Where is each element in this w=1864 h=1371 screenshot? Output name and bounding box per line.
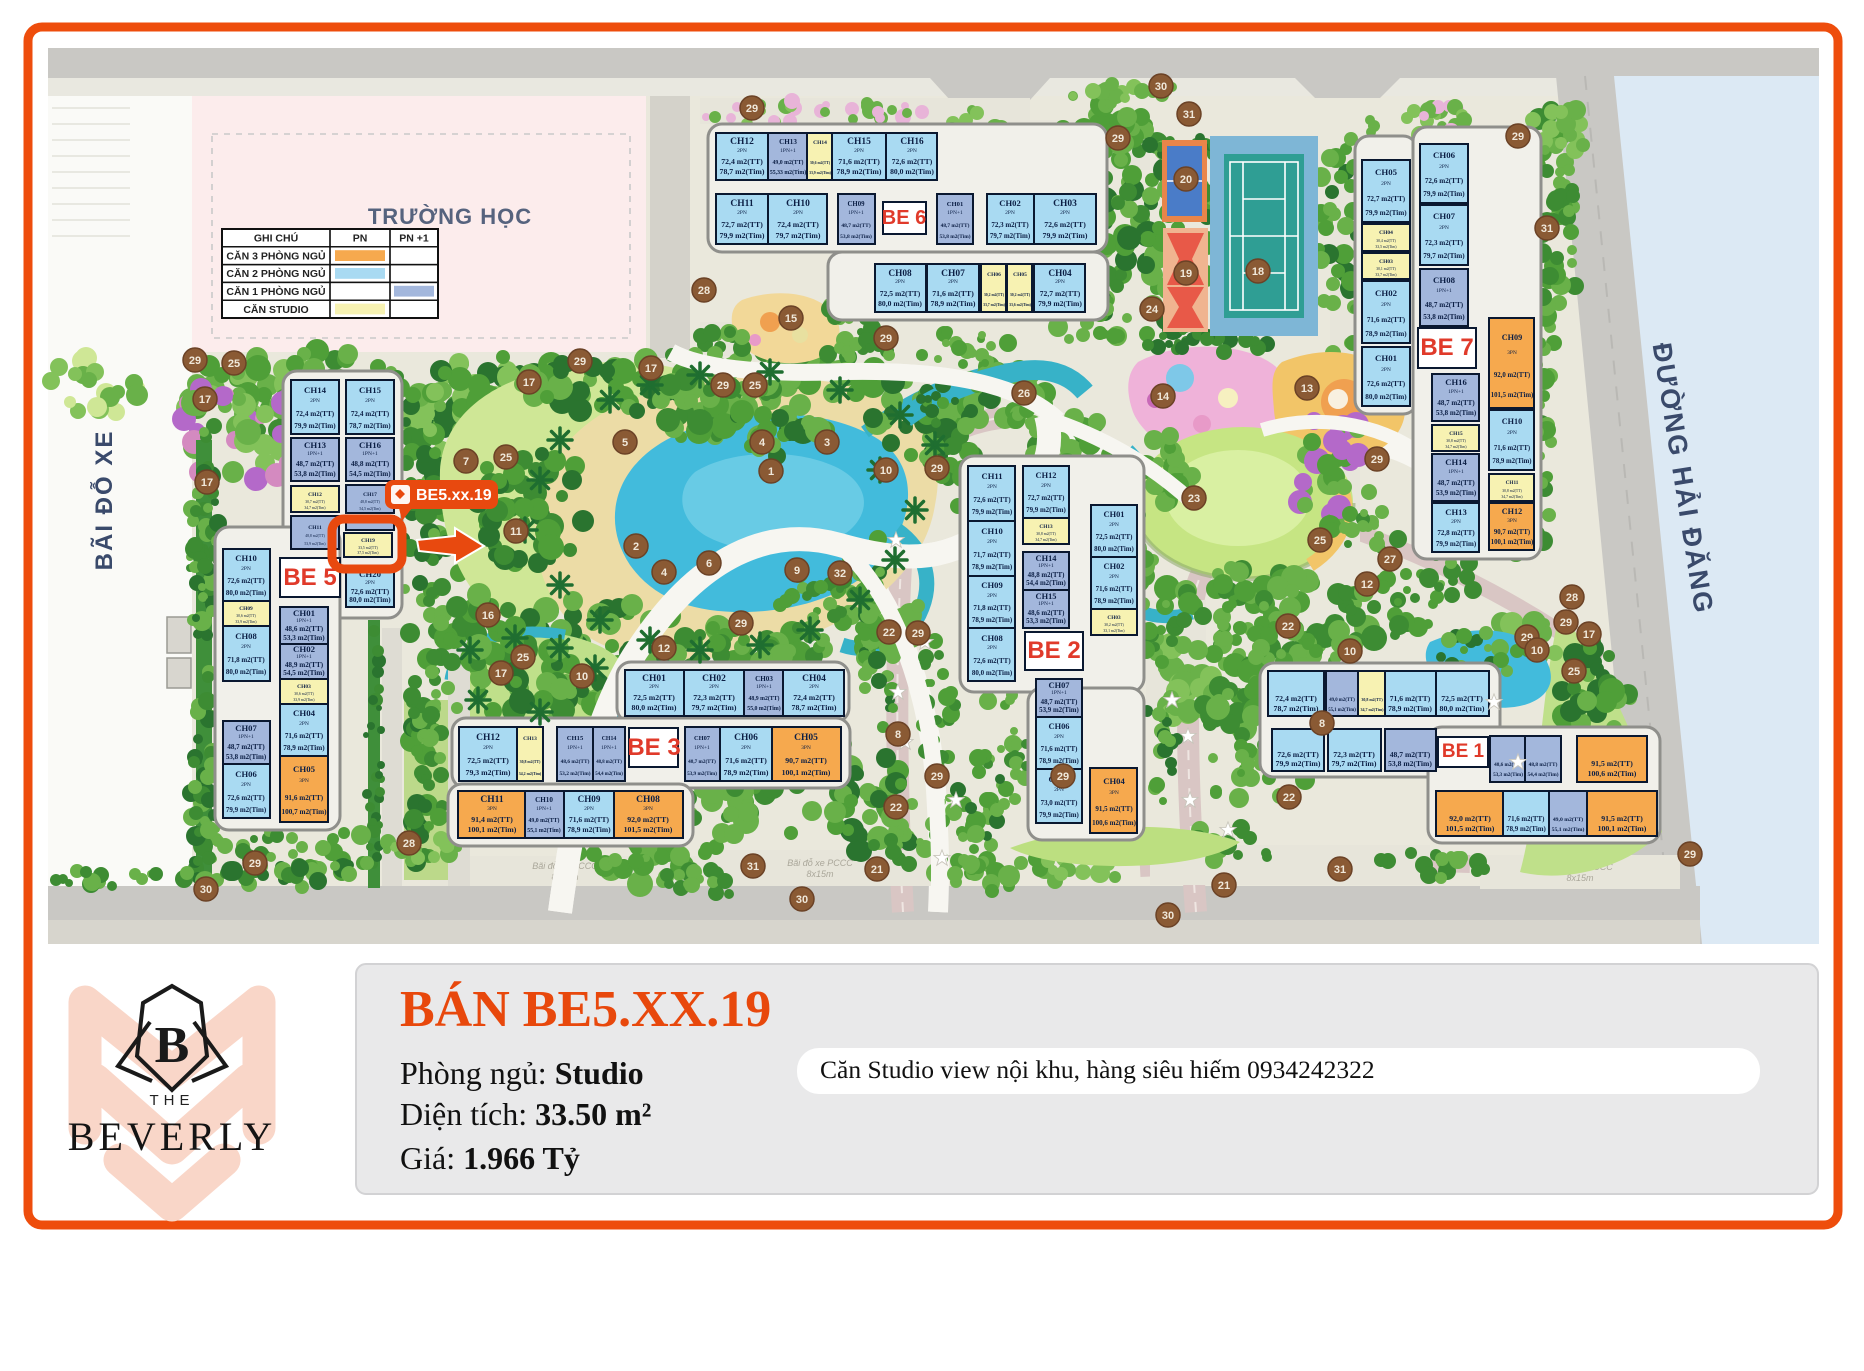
svg-text:2PN: 2PN [737, 210, 747, 216]
svg-text:79,9 m2(Tim): 79,9 m2(Tim) [720, 231, 765, 240]
svg-text:30,8 m2(TT): 30,8 m2(TT) [520, 760, 541, 764]
svg-text:80,0 m2(Tim): 80,0 m2(Tim) [878, 299, 922, 308]
svg-text:2PN: 2PN [907, 148, 917, 154]
svg-text:28: 28 [1566, 592, 1578, 604]
svg-text:48,7 m2(TT): 48,7 m2(TT) [1437, 479, 1475, 487]
svg-text:2PN: 2PN [987, 593, 997, 599]
svg-text:80,0 m2(Tim): 80,0 m2(Tim) [1094, 546, 1134, 553]
svg-text:72,7 m2(TT): 72,7 m2(TT) [1040, 289, 1081, 298]
svg-text:Căn Studio view nội khu, hàng: Căn Studio view nội khu, hàng siêu hiếm … [820, 1055, 1375, 1084]
svg-text:CH14: CH14 [1036, 554, 1058, 563]
svg-text:34,2 m2(Tim): 34,2 m2(Tim) [519, 772, 542, 776]
svg-text:22: 22 [890, 802, 902, 814]
svg-text:72,5 m2(TT): 72,5 m2(TT) [467, 756, 509, 765]
svg-text:CH07: CH07 [1433, 211, 1456, 221]
svg-text:B: B [155, 1017, 190, 1074]
svg-text:CH07: CH07 [694, 735, 711, 742]
svg-text:2PN: 2PN [809, 684, 819, 690]
svg-text:CH14: CH14 [602, 736, 617, 742]
svg-text:1PN+1: 1PN+1 [947, 210, 963, 216]
svg-text:29: 29 [1512, 131, 1524, 143]
svg-text:72,3 m2(TT): 72,3 m2(TT) [1425, 239, 1464, 247]
svg-text:2PN: 2PN [1439, 164, 1449, 170]
svg-text:12: 12 [658, 643, 670, 655]
svg-text:30,2 m2(TT): 30,2 m2(TT) [1010, 293, 1031, 297]
svg-text:29: 29 [1684, 849, 1696, 861]
svg-text:29: 29 [735, 618, 747, 630]
svg-text:78,9 m2(Tim): 78,9 m2(Tim) [567, 825, 611, 834]
svg-text:79,9 m2(Tim): 79,9 m2(Tim) [1039, 812, 1079, 819]
svg-text:80,0 m2(Tim): 80,0 m2(Tim) [349, 596, 391, 604]
svg-text:34,7 m2(Tim): 34,7 m2(Tim) [1360, 707, 1384, 712]
svg-text:2PN: 2PN [584, 806, 594, 812]
svg-text:32: 32 [834, 568, 846, 580]
svg-text:79,9 m2(Tim): 79,9 m2(Tim) [1276, 759, 1321, 768]
svg-text:1PN+1: 1PN+1 [756, 684, 772, 690]
svg-text:BE 1: BE 1 [1442, 741, 1485, 762]
svg-text:CH01: CH01 [642, 674, 666, 684]
svg-text:CĂN 2 PHÒNG NGỦ: CĂN 2 PHÒNG NGỦ [226, 267, 325, 280]
svg-text:17: 17 [645, 363, 657, 375]
svg-text:CH12: CH12 [1036, 471, 1057, 480]
svg-text:72,5 m2(TT): 72,5 m2(TT) [633, 693, 675, 702]
svg-text:48,9 m2(TT): 48,9 m2(TT) [285, 661, 324, 669]
svg-text:71,6 m2(TT): 71,6 m2(TT) [1494, 445, 1530, 452]
svg-text:53,8 m2(Tim): 53,8 m2(Tim) [939, 233, 970, 240]
svg-text:72,6 m2(TT): 72,6 m2(TT) [1044, 220, 1086, 229]
svg-text:48,7 m2(TT): 48,7 m2(TT) [841, 222, 871, 229]
svg-text:TRƯỜNG HỌC: TRƯỜNG HỌC [368, 204, 532, 229]
svg-text:CH15: CH15 [359, 385, 382, 395]
svg-text:5: 5 [622, 437, 628, 449]
svg-text:11: 11 [510, 526, 522, 538]
svg-text:72,6 m2(TT): 72,6 m2(TT) [973, 496, 1011, 504]
svg-text:CH06: CH06 [734, 733, 758, 743]
svg-text:78,9 m2(Tim): 78,9 m2(Tim) [837, 167, 882, 176]
svg-text:78,7 m2(Tim): 78,7 m2(Tim) [720, 167, 765, 176]
svg-text:72,6 m2(TT): 72,6 m2(TT) [1367, 380, 1406, 388]
svg-text:PN +1: PN +1 [399, 233, 429, 245]
svg-text:55,1 m2(Tim): 55,1 m2(Tim) [1552, 826, 1585, 833]
svg-text:48,9 m2(TT): 48,9 m2(TT) [749, 695, 780, 702]
svg-text:55,33 m2(Tim): 55,33 m2(Tim) [770, 169, 806, 176]
svg-text:33,7 m2(Tim): 33,7 m2(Tim) [983, 303, 1006, 307]
svg-text:CH05: CH05 [794, 733, 818, 743]
svg-text:30,6 m2(TT): 30,6 m2(TT) [810, 161, 831, 165]
svg-text:1PN+1: 1PN+1 [1051, 690, 1067, 696]
svg-text:2PN: 2PN [895, 279, 905, 285]
svg-text:1PN+1: 1PN+1 [307, 451, 323, 457]
svg-text:CH06: CH06 [1433, 150, 1456, 160]
svg-text:78,9 m2(Tim): 78,9 m2(Tim) [1094, 598, 1134, 605]
svg-text:1PN+1: 1PN+1 [1436, 288, 1452, 294]
svg-text:1PN+1: 1PN+1 [780, 148, 796, 154]
svg-text:CH11: CH11 [981, 471, 1002, 481]
svg-text:BE 2: BE 2 [1027, 637, 1080, 664]
svg-text:CH09: CH09 [239, 606, 253, 612]
svg-text:Giá: 1.966 Tỷ: Giá: 1.966 Tỷ [400, 1140, 580, 1176]
svg-text:CH03: CH03 [297, 684, 311, 690]
svg-text:79,9 m2(Tim): 79,9 m2(Tim) [1038, 299, 1082, 308]
svg-text:3PN: 3PN [643, 806, 653, 812]
svg-text:48,7 m2(TT): 48,7 m2(TT) [1425, 301, 1464, 309]
svg-text:CH14: CH14 [1445, 457, 1467, 467]
svg-text:91,5 m2(TT): 91,5 m2(TT) [1601, 814, 1643, 823]
svg-text:21: 21 [871, 864, 883, 876]
svg-text:CH14: CH14 [813, 140, 827, 146]
svg-text:27: 27 [1384, 554, 1396, 566]
svg-text:30,2 m2(TT): 30,2 m2(TT) [984, 293, 1005, 297]
svg-text:1: 1 [768, 466, 774, 478]
svg-text:CH13: CH13 [1039, 524, 1053, 530]
svg-text:15: 15 [785, 313, 797, 325]
svg-text:72,6 m2(TT): 72,6 m2(TT) [227, 794, 265, 802]
svg-text:78,9 m2(Tim): 78,9 m2(Tim) [724, 768, 769, 777]
svg-text:72,5 m2(TT): 72,5 m2(TT) [1441, 694, 1483, 703]
svg-text:72,3 m2(TT): 72,3 m2(TT) [1333, 750, 1375, 759]
svg-text:CH13: CH13 [779, 138, 797, 146]
svg-text:54,5 m2(Tim): 54,5 m2(Tim) [283, 669, 325, 677]
svg-text:48,7 m2(TT): 48,7 m2(TT) [1437, 399, 1475, 407]
svg-text:CH13: CH13 [523, 736, 537, 742]
svg-text:53,8 m2(Tim): 53,8 m2(Tim) [226, 753, 267, 761]
svg-text:1PN+1: 1PN+1 [1448, 469, 1464, 475]
svg-text:71,6 m2(TT): 71,6 m2(TT) [285, 732, 324, 740]
svg-text:CH02: CH02 [999, 198, 1020, 208]
svg-text:CH01: CH01 [293, 608, 315, 618]
svg-text:2PN: 2PN [987, 645, 997, 651]
svg-text:80,0 m2(Tim): 80,0 m2(Tim) [1365, 393, 1407, 401]
svg-text:CH09: CH09 [578, 794, 601, 804]
svg-text:49,0 m2(TT): 49,0 m2(TT) [773, 159, 804, 166]
svg-text:10: 10 [880, 465, 892, 477]
svg-text:72,4 m2(TT): 72,4 m2(TT) [793, 693, 835, 702]
svg-text:CH16: CH16 [1445, 377, 1467, 387]
svg-text:CH17: CH17 [363, 492, 377, 498]
svg-text:100,1 m2(Tim): 100,1 m2(Tim) [468, 825, 517, 834]
svg-text:2PN: 2PN [1060, 210, 1070, 216]
svg-text:CH03: CH03 [1053, 199, 1077, 209]
svg-text:BE 6: BE 6 [882, 207, 926, 229]
svg-text:48,7 m2(TT): 48,7 m2(TT) [1041, 699, 1078, 706]
svg-text:33,6 m2(Tim): 33,6 m2(Tim) [1009, 303, 1032, 307]
svg-text:3PN: 3PN [1507, 518, 1517, 524]
svg-text:79,7 m2(Tim): 79,7 m2(Tim) [990, 232, 1031, 240]
svg-text:CH15: CH15 [847, 137, 871, 147]
svg-text:BE 7: BE 7 [1420, 334, 1473, 361]
svg-text:100,1 m2(Tim): 100,1 m2(Tim) [782, 768, 831, 777]
svg-text:72,8 m2(TT): 72,8 m2(TT) [1437, 529, 1475, 537]
svg-text:1PN+1: 1PN+1 [848, 210, 864, 216]
svg-text:100,1 m2(Tim): 100,1 m2(Tim) [1598, 824, 1647, 833]
svg-text:CH09: CH09 [1502, 333, 1522, 342]
svg-text:8: 8 [895, 729, 901, 741]
svg-text:CH10: CH10 [535, 796, 553, 804]
svg-text:29: 29 [931, 771, 943, 783]
svg-text:1PN+1: 1PN+1 [694, 745, 710, 751]
svg-text:Phòng ngủ: Studio: Phòng ngủ: Studio [400, 1055, 644, 1091]
svg-text:71,8 m2(TT): 71,8 m2(TT) [973, 604, 1011, 612]
svg-text:CH04: CH04 [1379, 230, 1393, 236]
svg-text:Diện tích: 33.50 m²: Diện tích: 33.50 m² [400, 1096, 651, 1132]
svg-text:80,0 m2(Tim): 80,0 m2(Tim) [972, 669, 1013, 677]
svg-text:2PN: 2PN [793, 210, 803, 216]
svg-text:71,6 m2(TT): 71,6 m2(TT) [1096, 586, 1133, 593]
svg-text:49,0 m2(TT): 49,0 m2(TT) [1329, 698, 1355, 703]
svg-text:16: 16 [482, 610, 494, 622]
svg-text:30,8 m2(TT): 30,8 m2(TT) [1361, 697, 1383, 702]
svg-text:53,8 m2(Tim): 53,8 m2(Tim) [1436, 409, 1477, 417]
svg-text:49,0 m2(TT): 49,0 m2(TT) [1553, 816, 1583, 823]
svg-text:79,7 m2(Tim): 79,7 m2(Tim) [1332, 759, 1377, 768]
svg-text:53,2 m2(Tim): 53,2 m2(Tim) [559, 770, 590, 777]
svg-text:48,8 m2(TT): 48,8 m2(TT) [351, 460, 390, 468]
svg-text:2PN: 2PN [737, 148, 747, 154]
svg-text:80,0 m2(Tim): 80,0 m2(Tim) [226, 668, 267, 676]
svg-text:90,7 m2(TT): 90,7 m2(TT) [785, 756, 827, 765]
svg-text:91,5 m2(TT): 91,5 m2(TT) [1591, 759, 1633, 768]
svg-text:CH05: CH05 [1375, 167, 1398, 177]
svg-text:3PN: 3PN [1109, 790, 1119, 796]
svg-text:72,6 m2(TT): 72,6 m2(TT) [973, 657, 1011, 665]
svg-text:CH02: CH02 [293, 644, 316, 654]
svg-text:30: 30 [796, 894, 808, 906]
svg-text:22: 22 [1283, 792, 1295, 804]
svg-text:29: 29 [746, 103, 758, 115]
svg-text:1PN+1: 1PN+1 [567, 745, 583, 751]
svg-text:CH11: CH11 [730, 199, 753, 209]
svg-text:1PN+1: 1PN+1 [362, 451, 378, 457]
svg-text:3PN: 3PN [487, 806, 497, 812]
svg-text:2PN: 2PN [1005, 210, 1015, 216]
svg-text:48,7 m2(TT): 48,7 m2(TT) [227, 743, 265, 751]
svg-text:72,5 m2(TT): 72,5 m2(TT) [880, 289, 921, 298]
svg-text:79,9 m2(Tim): 79,9 m2(Tim) [294, 422, 336, 430]
svg-text:48,6 m2(TT): 48,6 m2(TT) [561, 758, 590, 765]
svg-text:26: 26 [1018, 388, 1030, 400]
svg-text:6: 6 [706, 558, 712, 570]
svg-text:100,6 m2(Tim): 100,6 m2(Tim) [1588, 769, 1637, 778]
svg-text:78,9 m2(Tim): 78,9 m2(Tim) [1365, 330, 1407, 338]
svg-text:72,5 m2(TT): 72,5 m2(TT) [1096, 534, 1133, 541]
svg-text:CH11: CH11 [1506, 480, 1519, 486]
svg-text:53,9 m2(Tim): 53,9 m2(Tim) [687, 770, 717, 777]
svg-text:71,6 m2(TT): 71,6 m2(TT) [1041, 746, 1078, 753]
svg-text:29: 29 [1371, 454, 1383, 466]
svg-text:31: 31 [1541, 223, 1553, 235]
svg-text:22: 22 [1282, 621, 1294, 633]
svg-text:CH10: CH10 [1502, 417, 1522, 426]
svg-text:54,4 m2(Tim): 54,4 m2(Tim) [1026, 580, 1066, 587]
svg-text:4: 4 [759, 437, 766, 449]
svg-text:2PN: 2PN [709, 684, 719, 690]
svg-text:17: 17 [199, 394, 211, 406]
svg-text:72,4 m2(TT): 72,4 m2(TT) [777, 220, 819, 229]
svg-text:72,4 m2(TT): 72,4 m2(TT) [721, 157, 763, 166]
svg-text:BÁN BE5.XX.19: BÁN BE5.XX.19 [400, 980, 771, 1038]
svg-text:48,8 m2(TT): 48,8 m2(TT) [1028, 572, 1065, 579]
svg-text:71,6 m2(TT): 71,6 m2(TT) [838, 157, 880, 166]
svg-text:10: 10 [576, 671, 588, 683]
svg-text:78,7 m2(Tim): 78,7 m2(Tim) [349, 422, 391, 430]
svg-text:55,0 m2(Tim): 55,0 m2(Tim) [747, 705, 780, 712]
svg-text:2PN: 2PN [299, 721, 309, 727]
svg-text:CH08: CH08 [235, 631, 257, 641]
svg-text:79,9 m2(Tim): 79,9 m2(Tim) [1436, 540, 1477, 548]
svg-text:71,6 m2(TT): 71,6 m2(TT) [569, 815, 610, 824]
svg-text:CH09: CH09 [981, 580, 1002, 590]
svg-text:72,6 m2(TT): 72,6 m2(TT) [1277, 750, 1319, 759]
svg-text:CH03: CH03 [1107, 615, 1121, 621]
svg-text:THE: THE [150, 1092, 195, 1109]
svg-text:1PN+1: 1PN+1 [1038, 563, 1054, 569]
svg-text:72,6 m2(TT): 72,6 m2(TT) [1425, 177, 1464, 185]
svg-text:23: 23 [1188, 493, 1200, 505]
svg-text:72,7 m2(TT): 72,7 m2(TT) [721, 220, 763, 229]
svg-text:78,7 m2(Tim): 78,7 m2(Tim) [792, 703, 837, 712]
svg-text:1PN+1: 1PN+1 [296, 618, 312, 624]
svg-text:72,6 m2(TT): 72,6 m2(TT) [351, 588, 390, 596]
svg-text:72,4 m2(TT): 72,4 m2(TT) [1275, 694, 1317, 703]
svg-text:CH02: CH02 [702, 674, 726, 684]
svg-text:90,7 m2(TT): 90,7 m2(TT) [1494, 529, 1530, 536]
svg-text:54,4 m2(Tim): 54,4 m2(Tim) [595, 772, 623, 777]
svg-text:4: 4 [661, 567, 668, 579]
svg-text:2PN: 2PN [1381, 367, 1391, 373]
svg-text:53,8 m2(Tim): 53,8 m2(Tim) [840, 233, 872, 240]
svg-text:2PN: 2PN [1109, 574, 1119, 580]
svg-text:101,5 m2(Tim): 101,5 m2(Tim) [1491, 392, 1534, 399]
svg-text:2PN: 2PN [1109, 522, 1119, 528]
svg-text:48,8 m2(TT): 48,8 m2(TT) [596, 760, 622, 765]
svg-text:GHI CHÚ: GHI CHÚ [254, 232, 298, 245]
svg-text:80,0 m2(Tim): 80,0 m2(Tim) [226, 589, 267, 597]
svg-text:55,1 m2(Tim): 55,1 m2(Tim) [1328, 708, 1356, 713]
svg-text:54,5 m2(Tim): 54,5 m2(Tim) [349, 470, 391, 478]
svg-text:48,7 m2(TT): 48,7 m2(TT) [941, 222, 970, 229]
svg-text:BÃI ĐỖ XE: BÃI ĐỖ XE [89, 430, 118, 571]
svg-text:10: 10 [1531, 645, 1543, 657]
svg-text:20: 20 [1180, 174, 1192, 186]
svg-text:CH01: CH01 [1375, 353, 1397, 363]
svg-text:CH10: CH10 [235, 553, 256, 563]
svg-text:71,6 m2(TT): 71,6 m2(TT) [1390, 694, 1431, 703]
svg-text:2PN: 2PN [365, 580, 375, 586]
svg-text:CĂN STUDIO: CĂN STUDIO [243, 303, 308, 316]
svg-text:79,9 m2(Tim): 79,9 m2(Tim) [1423, 190, 1465, 198]
svg-text:29: 29 [249, 858, 261, 870]
svg-text:53,8 m2(Tim): 53,8 m2(Tim) [294, 470, 336, 478]
svg-text:79,3 m2(Tim): 79,3 m2(Tim) [466, 768, 511, 777]
svg-text:CH06: CH06 [1049, 722, 1070, 731]
svg-text:25: 25 [517, 652, 529, 664]
svg-text:78,9 m2(Tim): 78,9 m2(Tim) [1506, 826, 1546, 833]
svg-text:Bãi đỗ xe PCCC: Bãi đỗ xe PCCC [787, 858, 853, 868]
svg-text:72,6 m2(TT): 72,6 m2(TT) [892, 157, 933, 166]
svg-text:CH09: CH09 [848, 201, 866, 208]
svg-text:3: 3 [824, 437, 830, 449]
svg-text:92,0 m2(TT): 92,0 m2(TT) [627, 815, 669, 824]
svg-text:2PN: 2PN [854, 148, 864, 154]
svg-text:48,7 m2(TT): 48,7 m2(TT) [1390, 750, 1431, 759]
svg-text:BEVERLY: BEVERLY [68, 1114, 276, 1159]
svg-text:19: 19 [1180, 268, 1192, 280]
svg-text:53,3 m2(Tim): 53,3 m2(Tim) [1026, 618, 1066, 625]
svg-text:29: 29 [574, 356, 586, 368]
svg-text:CH04: CH04 [293, 708, 316, 718]
svg-text:29: 29 [931, 463, 943, 475]
svg-text:48,6 m2(TT): 48,6 m2(TT) [1028, 610, 1065, 617]
svg-text:17: 17 [1583, 629, 1595, 641]
svg-text:2PN: 2PN [1055, 279, 1065, 285]
svg-text:91,4 m2(TT): 91,4 m2(TT) [471, 815, 513, 824]
svg-text:54,4 m2(Tim): 54,4 m2(Tim) [1527, 771, 1558, 778]
svg-text:2PN: 2PN [241, 566, 251, 572]
svg-text:CH15: CH15 [1449, 431, 1463, 437]
svg-text:9: 9 [794, 565, 800, 577]
svg-text:25: 25 [228, 358, 240, 370]
svg-text:3PN: 3PN [801, 745, 811, 751]
svg-text:CH15: CH15 [1036, 592, 1057, 601]
svg-text:CĂN 3 PHÒNG NGỦ: CĂN 3 PHÒNG NGỦ [226, 249, 325, 262]
svg-text:71,6 m2(TT): 71,6 m2(TT) [1367, 316, 1406, 324]
svg-text:30: 30 [200, 884, 212, 896]
svg-text:CH10: CH10 [981, 526, 1002, 536]
svg-text:3PN: 3PN [299, 778, 309, 784]
svg-text:1PN+1: 1PN+1 [1448, 389, 1464, 395]
svg-text:92,0 m2(TT): 92,0 m2(TT) [1494, 372, 1530, 379]
svg-text:79,9 m2(Tim): 79,9 m2(Tim) [1365, 209, 1407, 217]
svg-text:79,7 m2(Tim): 79,7 m2(Tim) [692, 703, 737, 712]
svg-text:25: 25 [500, 452, 512, 464]
svg-text:CH16: CH16 [359, 440, 382, 450]
svg-text:91,6 m2(TT): 91,6 m2(TT) [285, 794, 324, 802]
svg-text:2PN: 2PN [649, 684, 659, 690]
svg-text:CH13: CH13 [1445, 507, 1466, 517]
svg-text:2PN: 2PN [241, 644, 251, 650]
svg-text:12: 12 [1361, 579, 1373, 591]
svg-text:2PN: 2PN [1507, 430, 1517, 436]
svg-text:CH02: CH02 [1104, 562, 1125, 571]
svg-text:29: 29 [912, 628, 924, 640]
svg-text:53,8 m2(Tim): 53,8 m2(Tim) [1388, 759, 1432, 768]
svg-text:CH08: CH08 [981, 633, 1003, 643]
svg-text:78,9 m2(Tim): 78,9 m2(Tim) [972, 616, 1013, 624]
svg-text:CH12: CH12 [1502, 507, 1522, 516]
svg-text:1PN+1: 1PN+1 [601, 745, 617, 751]
svg-text:80,0 m2(Tim): 80,0 m2(Tim) [1440, 704, 1485, 713]
svg-text:78,9 m2(Tim): 78,9 m2(Tim) [972, 563, 1013, 571]
svg-text:78,9 m2(Tim): 78,9 m2(Tim) [1492, 458, 1531, 465]
svg-text:2PN: 2PN [1439, 225, 1449, 231]
svg-text:55,1 m2(Tim): 55,1 m2(Tim) [527, 827, 560, 834]
svg-text:CH13: CH13 [304, 440, 327, 450]
svg-text:CH01: CH01 [947, 201, 963, 208]
svg-text:2: 2 [633, 541, 639, 553]
svg-text:CH07: CH07 [1049, 681, 1070, 690]
svg-text:CH07: CH07 [235, 723, 257, 733]
svg-text:CH12: CH12 [730, 137, 754, 147]
svg-text:2PN: 2PN [310, 398, 320, 404]
svg-text:CH10: CH10 [786, 199, 810, 209]
svg-text:29: 29 [1057, 771, 1069, 783]
svg-text:2PN: 2PN [1054, 734, 1064, 740]
svg-text:31: 31 [1183, 109, 1195, 121]
svg-text:8: 8 [1319, 718, 1325, 730]
svg-text:CH11: CH11 [480, 795, 503, 805]
svg-text:2PN: 2PN [483, 745, 493, 751]
svg-text:28: 28 [698, 285, 710, 297]
